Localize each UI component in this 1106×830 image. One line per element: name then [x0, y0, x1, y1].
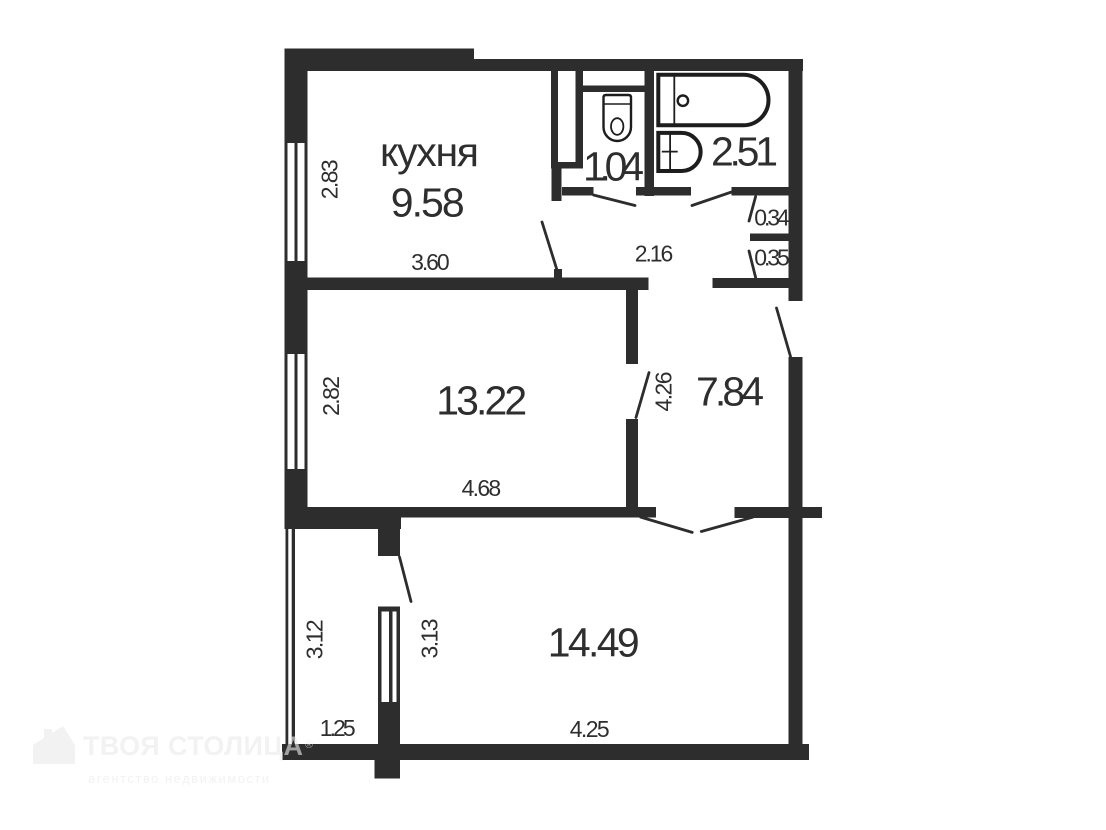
svg-text:2.83: 2.83	[317, 159, 343, 199]
svg-text:9.58: 9.58	[391, 180, 465, 226]
svg-text:3.13: 3.13	[417, 619, 443, 659]
svg-text:0.35: 0.35	[754, 245, 790, 271]
svg-text:1.25: 1.25	[320, 715, 356, 741]
svg-text:2.51: 2.51	[711, 129, 778, 175]
svg-text:4.26: 4.26	[651, 372, 677, 412]
svg-text:3.60: 3.60	[411, 249, 450, 275]
svg-text:агентство недвижимости: агентство недвижимости	[88, 771, 271, 786]
svg-text:2.82: 2.82	[318, 376, 344, 416]
svg-text:2.16: 2.16	[635, 241, 674, 267]
svg-text:3.12: 3.12	[301, 619, 327, 659]
svg-text:7.84: 7.84	[696, 369, 764, 415]
svg-text:®: ®	[305, 739, 313, 751]
svg-text:13.22: 13.22	[436, 378, 527, 424]
svg-text:4.25: 4.25	[570, 716, 610, 742]
svg-text:14.49: 14.49	[548, 620, 640, 666]
svg-text:0.34: 0.34	[754, 205, 790, 231]
svg-text:1.04: 1.04	[583, 144, 644, 190]
svg-text:ТВОЯ СТОЛИЦА: ТВОЯ СТОЛИЦА	[83, 731, 303, 761]
svg-text:кухня: кухня	[380, 129, 479, 175]
svg-text:4.68: 4.68	[462, 475, 502, 501]
